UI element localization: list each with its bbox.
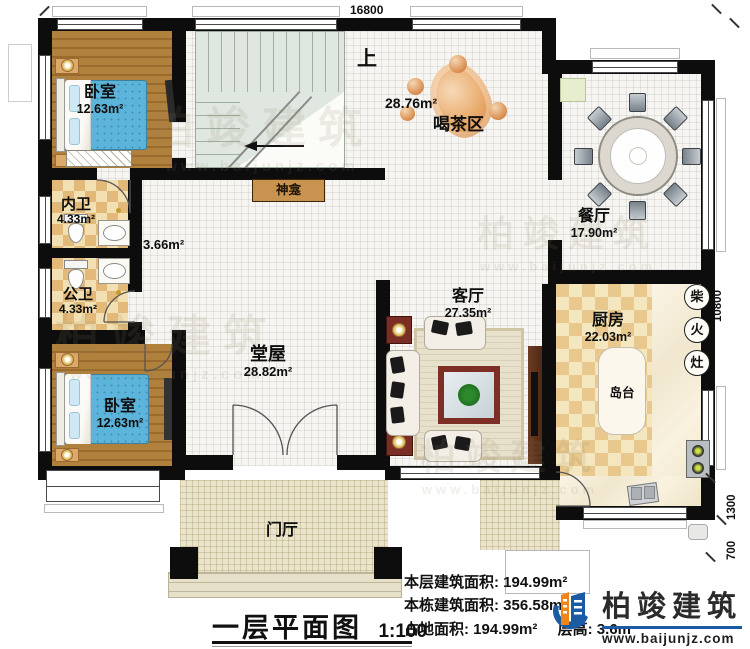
island-label: 岛台	[609, 386, 634, 400]
room-label-bedroom-bl: 卧室 12.63m²	[97, 398, 144, 431]
stat-building-area: 本栋建筑面积: 356.58m²	[404, 594, 567, 615]
logo-url: www.baijunjz.com	[602, 626, 742, 646]
firewood-stove-char-2: 火	[684, 317, 710, 343]
title-underline	[212, 641, 412, 644]
room-label-bedroom-tl: 卧室 12.63m²	[77, 84, 124, 117]
logo-name: 柏竣建筑	[602, 583, 742, 625]
foyer-label: 门厅	[266, 522, 298, 540]
firewood-stove-char-3: 灶	[684, 350, 710, 376]
tea-area-name: 喝茶区	[433, 115, 484, 135]
room-label-public-bath: 公卫 4.33m²	[59, 286, 97, 317]
dimension-right-low: 700	[726, 541, 738, 560]
hallway-area-label: 3.66m²	[143, 238, 184, 253]
company-logo: 柏竣建筑 www.baijunjz.com	[548, 583, 742, 646]
drawing-title-text: 一层平面图	[212, 613, 362, 643]
tea-area-value: 28.76m²	[385, 95, 437, 111]
logo-building-icon	[548, 583, 596, 642]
dimension-right-mid: 1300	[726, 494, 738, 520]
stat-floor-area: 本层建筑面积: 194.99m²	[404, 571, 567, 592]
room-label-living: 客厅 27.35m²	[445, 288, 492, 321]
room-label-ensuite: 内卫 4.33m²	[57, 196, 95, 227]
dimension-right-main: 10800	[712, 290, 724, 322]
title-underline-thin	[212, 646, 412, 647]
floor-plan: 神龛	[0, 0, 750, 649]
dimension-top: 16800	[350, 3, 383, 17]
firewood-stove-char-1: 柴	[684, 284, 710, 310]
stairs-up-label: 上	[357, 48, 377, 71]
drawing-title: 一层平面图 1:100	[212, 606, 427, 645]
room-label-dining: 餐厅 17.90m²	[571, 208, 618, 241]
room-label-kitchen: 厨房 22.03m²	[585, 312, 632, 345]
room-label-tangwu: 堂屋 28.82m²	[244, 344, 292, 380]
